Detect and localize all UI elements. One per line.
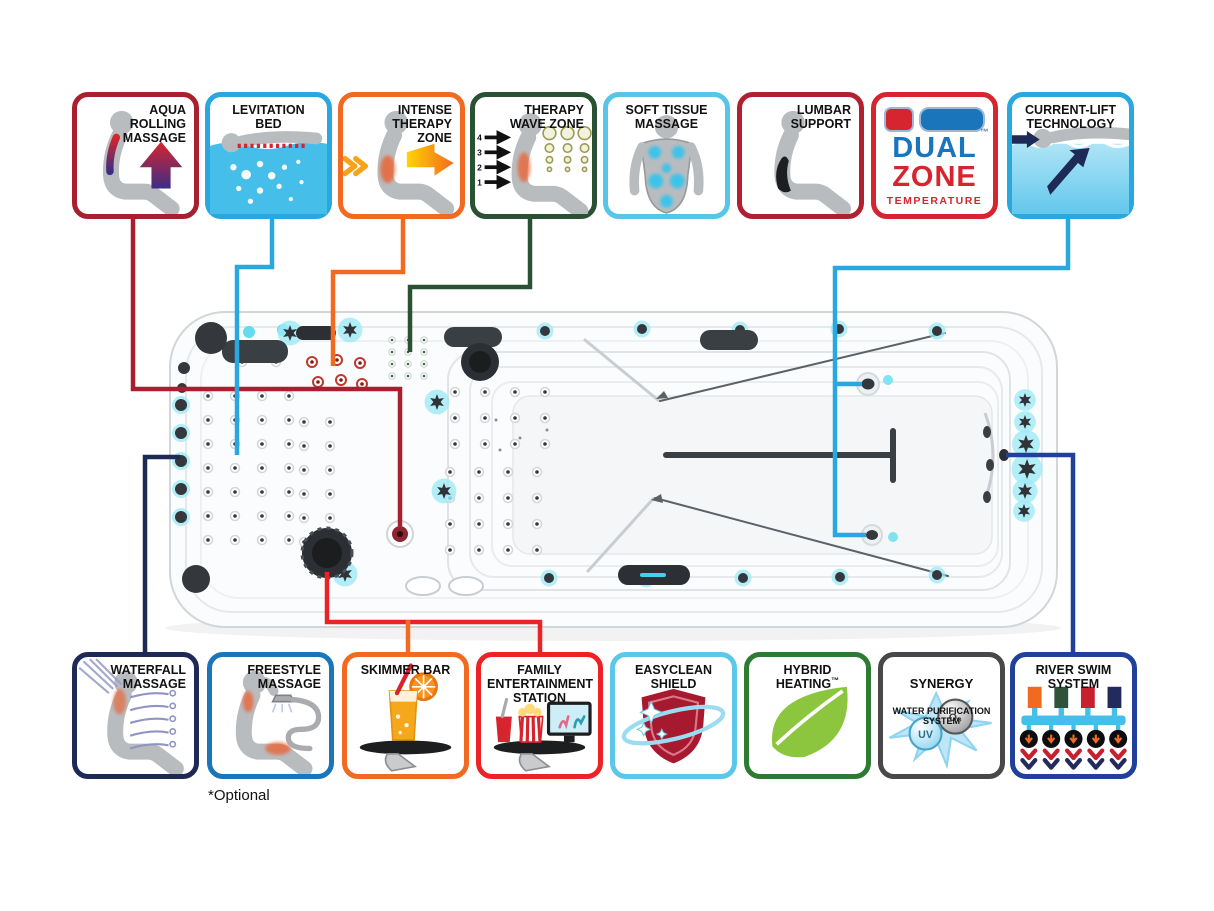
dual-zone-word-zone: ZONE — [892, 163, 977, 192]
badge-label: AQUA ROLLING MASSAGE — [107, 103, 186, 145]
svg-text:3: 3 — [477, 148, 482, 158]
badge-therapy-wave-zone: THERAPY WAVE ZONE 4 3 2 1 — [470, 92, 597, 219]
blue-zone-chip — [919, 107, 985, 132]
dual-zone-chips-icon — [884, 107, 985, 132]
badge-label: FAMILY ENTERTAINMENT STATION — [487, 663, 592, 705]
badge-label: SOFT TISSUE MASSAGE — [614, 103, 719, 131]
badge-label: LUMBAR SUPPORT — [772, 103, 851, 131]
badge-skimmer-bar: SKIMMER BAR — [342, 652, 469, 779]
badge-label: LEVITATION BED — [216, 103, 321, 131]
badge-family-entertainment-station: FAMILY ENTERTAINMENT STATION — [476, 652, 603, 779]
dual-zone-word-dual: DUAL ™ — [892, 134, 977, 163]
svg-text:1: 1 — [477, 177, 482, 187]
badge-lumbar-support: LUMBAR SUPPORT — [737, 92, 864, 219]
red-zone-chip — [884, 107, 914, 132]
badge-levitation-bed: LEVITATION BED — [205, 92, 332, 219]
badge-soft-tissue-massage: SOFT TISSUE MASSAGE — [603, 92, 730, 219]
optional-note: *Optional — [208, 787, 270, 804]
dual-zone-word-temperature: TEMPERATURE — [887, 195, 983, 207]
badge-label: EASYCLEAN SHIELD — [621, 663, 726, 691]
badge-label: RIVER SWIM SYSTEM — [1021, 663, 1126, 691]
badge-river-swim-system: RIVER SWIM SYSTEM — [1010, 652, 1137, 779]
badge-dual-zone-temperature: DUAL ™ ZONE TEMPERATURE — [871, 92, 998, 219]
badge-intense-therapy-zone: INTENSE THERAPY ZONE — [338, 92, 465, 219]
badge-easyclean-shield: EASYCLEAN SHIELD — [610, 652, 737, 779]
badge-label: WATERFALL MASSAGE — [107, 663, 186, 691]
trademark-symbol: ™ — [980, 128, 990, 137]
svg-text:2: 2 — [477, 162, 482, 172]
badge-aqua-rolling-massage: AQUA ROLLING MASSAGE — [72, 92, 199, 219]
badge-freestyle-massage: FREESTYLE MASSAGE — [207, 652, 334, 779]
badge-label: CURRENT-LIFT TECHNOLOGY — [1018, 103, 1123, 131]
synergy-title: SYNERGY — [889, 677, 994, 692]
badge-synergy-water-purification: SYNERGY WATER PURIFICATION SYSTEM O₃ UV — [878, 652, 1005, 779]
badge-label: SYNERGY WATER PURIFICATION SYSTEM — [889, 663, 994, 740]
badge-hybrid-heating: HYBRID HEATING™ — [744, 652, 871, 779]
badge-current-lift-technology: CURRENT-LIFT TECHNOLOGY — [1007, 92, 1134, 219]
badge-waterfall-massage: WATERFALL MASSAGE — [72, 652, 199, 779]
synergy-subtitle: WATER PURIFICATION SYSTEM — [889, 706, 994, 727]
svg-text:4: 4 — [477, 133, 482, 143]
badge-label: SKIMMER BAR — [353, 663, 458, 677]
swim-spa-feature-diagram: { "badges": { "aqua_rolling": {"label":"… — [0, 0, 1214, 911]
badge-label: FREESTYLE MASSAGE — [242, 663, 321, 691]
badge-label: HYBRID HEATING™ — [755, 663, 860, 691]
badge-label: THERAPY WAVE ZONE — [505, 103, 584, 131]
badge-label: INTENSE THERAPY ZONE — [373, 103, 452, 145]
trademark-symbol: ™ — [831, 676, 839, 685]
